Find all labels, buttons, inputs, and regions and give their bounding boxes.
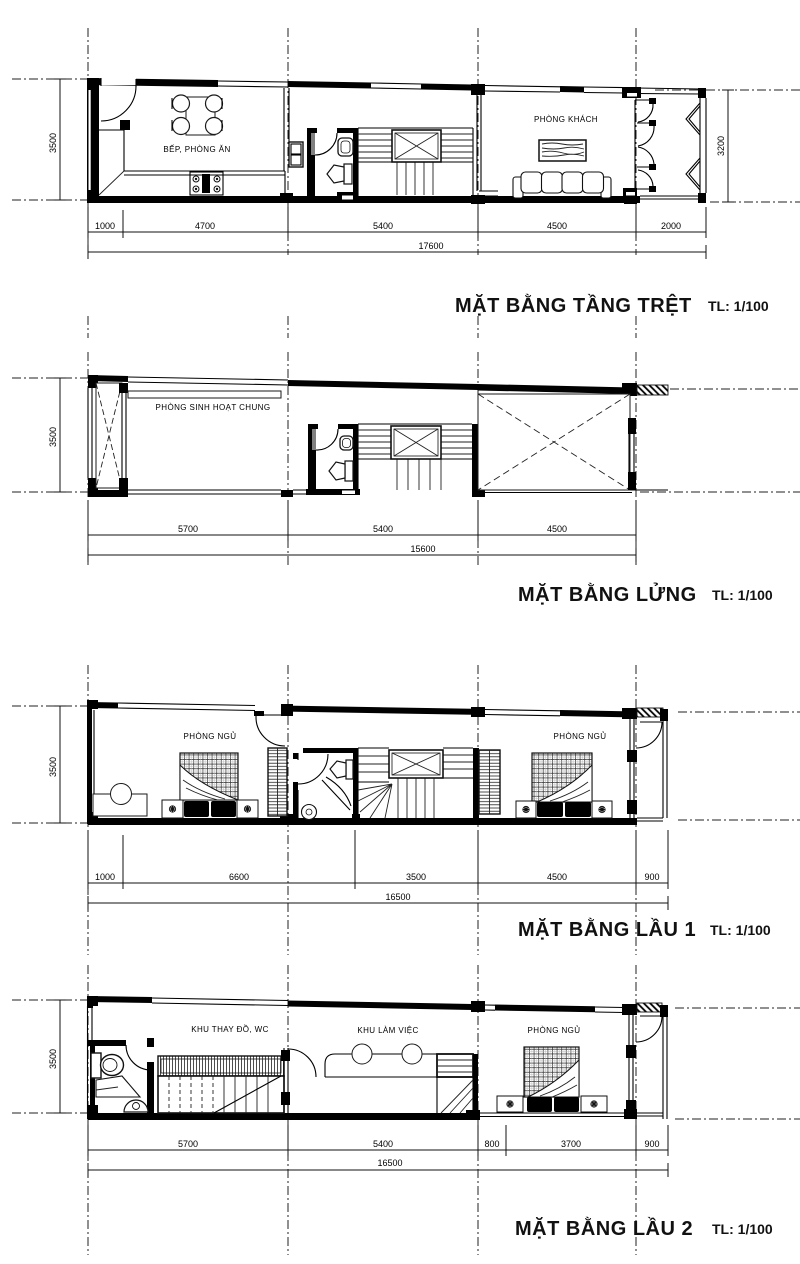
svg-text:15600: 15600	[410, 544, 435, 554]
svg-text:BẾP, PHÒNG ĂN: BẾP, PHÒNG ĂN	[163, 144, 230, 154]
svg-text:4500: 4500	[547, 221, 567, 231]
svg-text:4500: 4500	[547, 524, 567, 534]
svg-text:TL: 1/100: TL: 1/100	[712, 1221, 773, 1237]
svg-text:3500: 3500	[48, 133, 58, 153]
svg-text:900: 900	[644, 872, 659, 882]
svg-text:TL: 1/100: TL: 1/100	[708, 298, 769, 314]
svg-text:3500: 3500	[48, 427, 58, 447]
svg-text:2000: 2000	[661, 221, 681, 231]
svg-text:MẶT BẰNG TẦNG TRỆT: MẶT BẰNG TẦNG TRỆT	[455, 293, 692, 317]
svg-text:5700: 5700	[178, 1139, 198, 1149]
svg-text:TL: 1/100: TL: 1/100	[710, 922, 771, 938]
svg-text:3500: 3500	[48, 1049, 58, 1069]
svg-text:3700: 3700	[561, 1139, 581, 1149]
svg-text:3500: 3500	[48, 757, 58, 777]
svg-text:16500: 16500	[385, 892, 410, 902]
svg-text:16500: 16500	[377, 1158, 402, 1168]
svg-text:KHU LÀM VIỆC: KHU LÀM VIỆC	[357, 1026, 418, 1035]
svg-text:KHU THAY ĐỒ, WC: KHU THAY ĐỒ, WC	[191, 1024, 269, 1034]
svg-text:4700: 4700	[195, 221, 215, 231]
svg-text:5400: 5400	[373, 1139, 393, 1149]
svg-text:5700: 5700	[178, 524, 198, 534]
svg-text:5400: 5400	[373, 524, 393, 534]
svg-text:3200: 3200	[716, 136, 726, 156]
svg-text:MẶT BẰNG LẦU 1: MẶT BẰNG LẦU 1	[518, 917, 696, 941]
svg-text:4500: 4500	[547, 872, 567, 882]
svg-text:MẶT BẰNG LỬNG: MẶT BẰNG LỬNG	[518, 582, 697, 606]
svg-text:17600: 17600	[418, 241, 443, 251]
svg-text:PHÒNG SINH HOẠT CHUNG: PHÒNG SINH HOẠT CHUNG	[156, 403, 271, 412]
svg-text:5400: 5400	[373, 221, 393, 231]
svg-text:6600: 6600	[229, 872, 249, 882]
svg-text:PHÒNG KHÁCH: PHÒNG KHÁCH	[534, 115, 598, 124]
svg-text:3500: 3500	[406, 872, 426, 882]
svg-text:1000: 1000	[95, 221, 115, 231]
svg-text:PHÒNG NGỦ: PHÒNG NGỦ	[184, 732, 237, 741]
svg-text:MẶT BẰNG LẦU 2: MẶT BẰNG LẦU 2	[515, 1216, 693, 1240]
svg-text:800: 800	[484, 1139, 499, 1149]
svg-text:PHÒNG NGỦ: PHÒNG NGỦ	[528, 1026, 581, 1035]
svg-text:PHÒNG NGỦ: PHÒNG NGỦ	[554, 732, 607, 741]
svg-text:900: 900	[644, 1139, 659, 1149]
svg-text:1000: 1000	[95, 872, 115, 882]
svg-text:TL: 1/100: TL: 1/100	[712, 587, 773, 603]
